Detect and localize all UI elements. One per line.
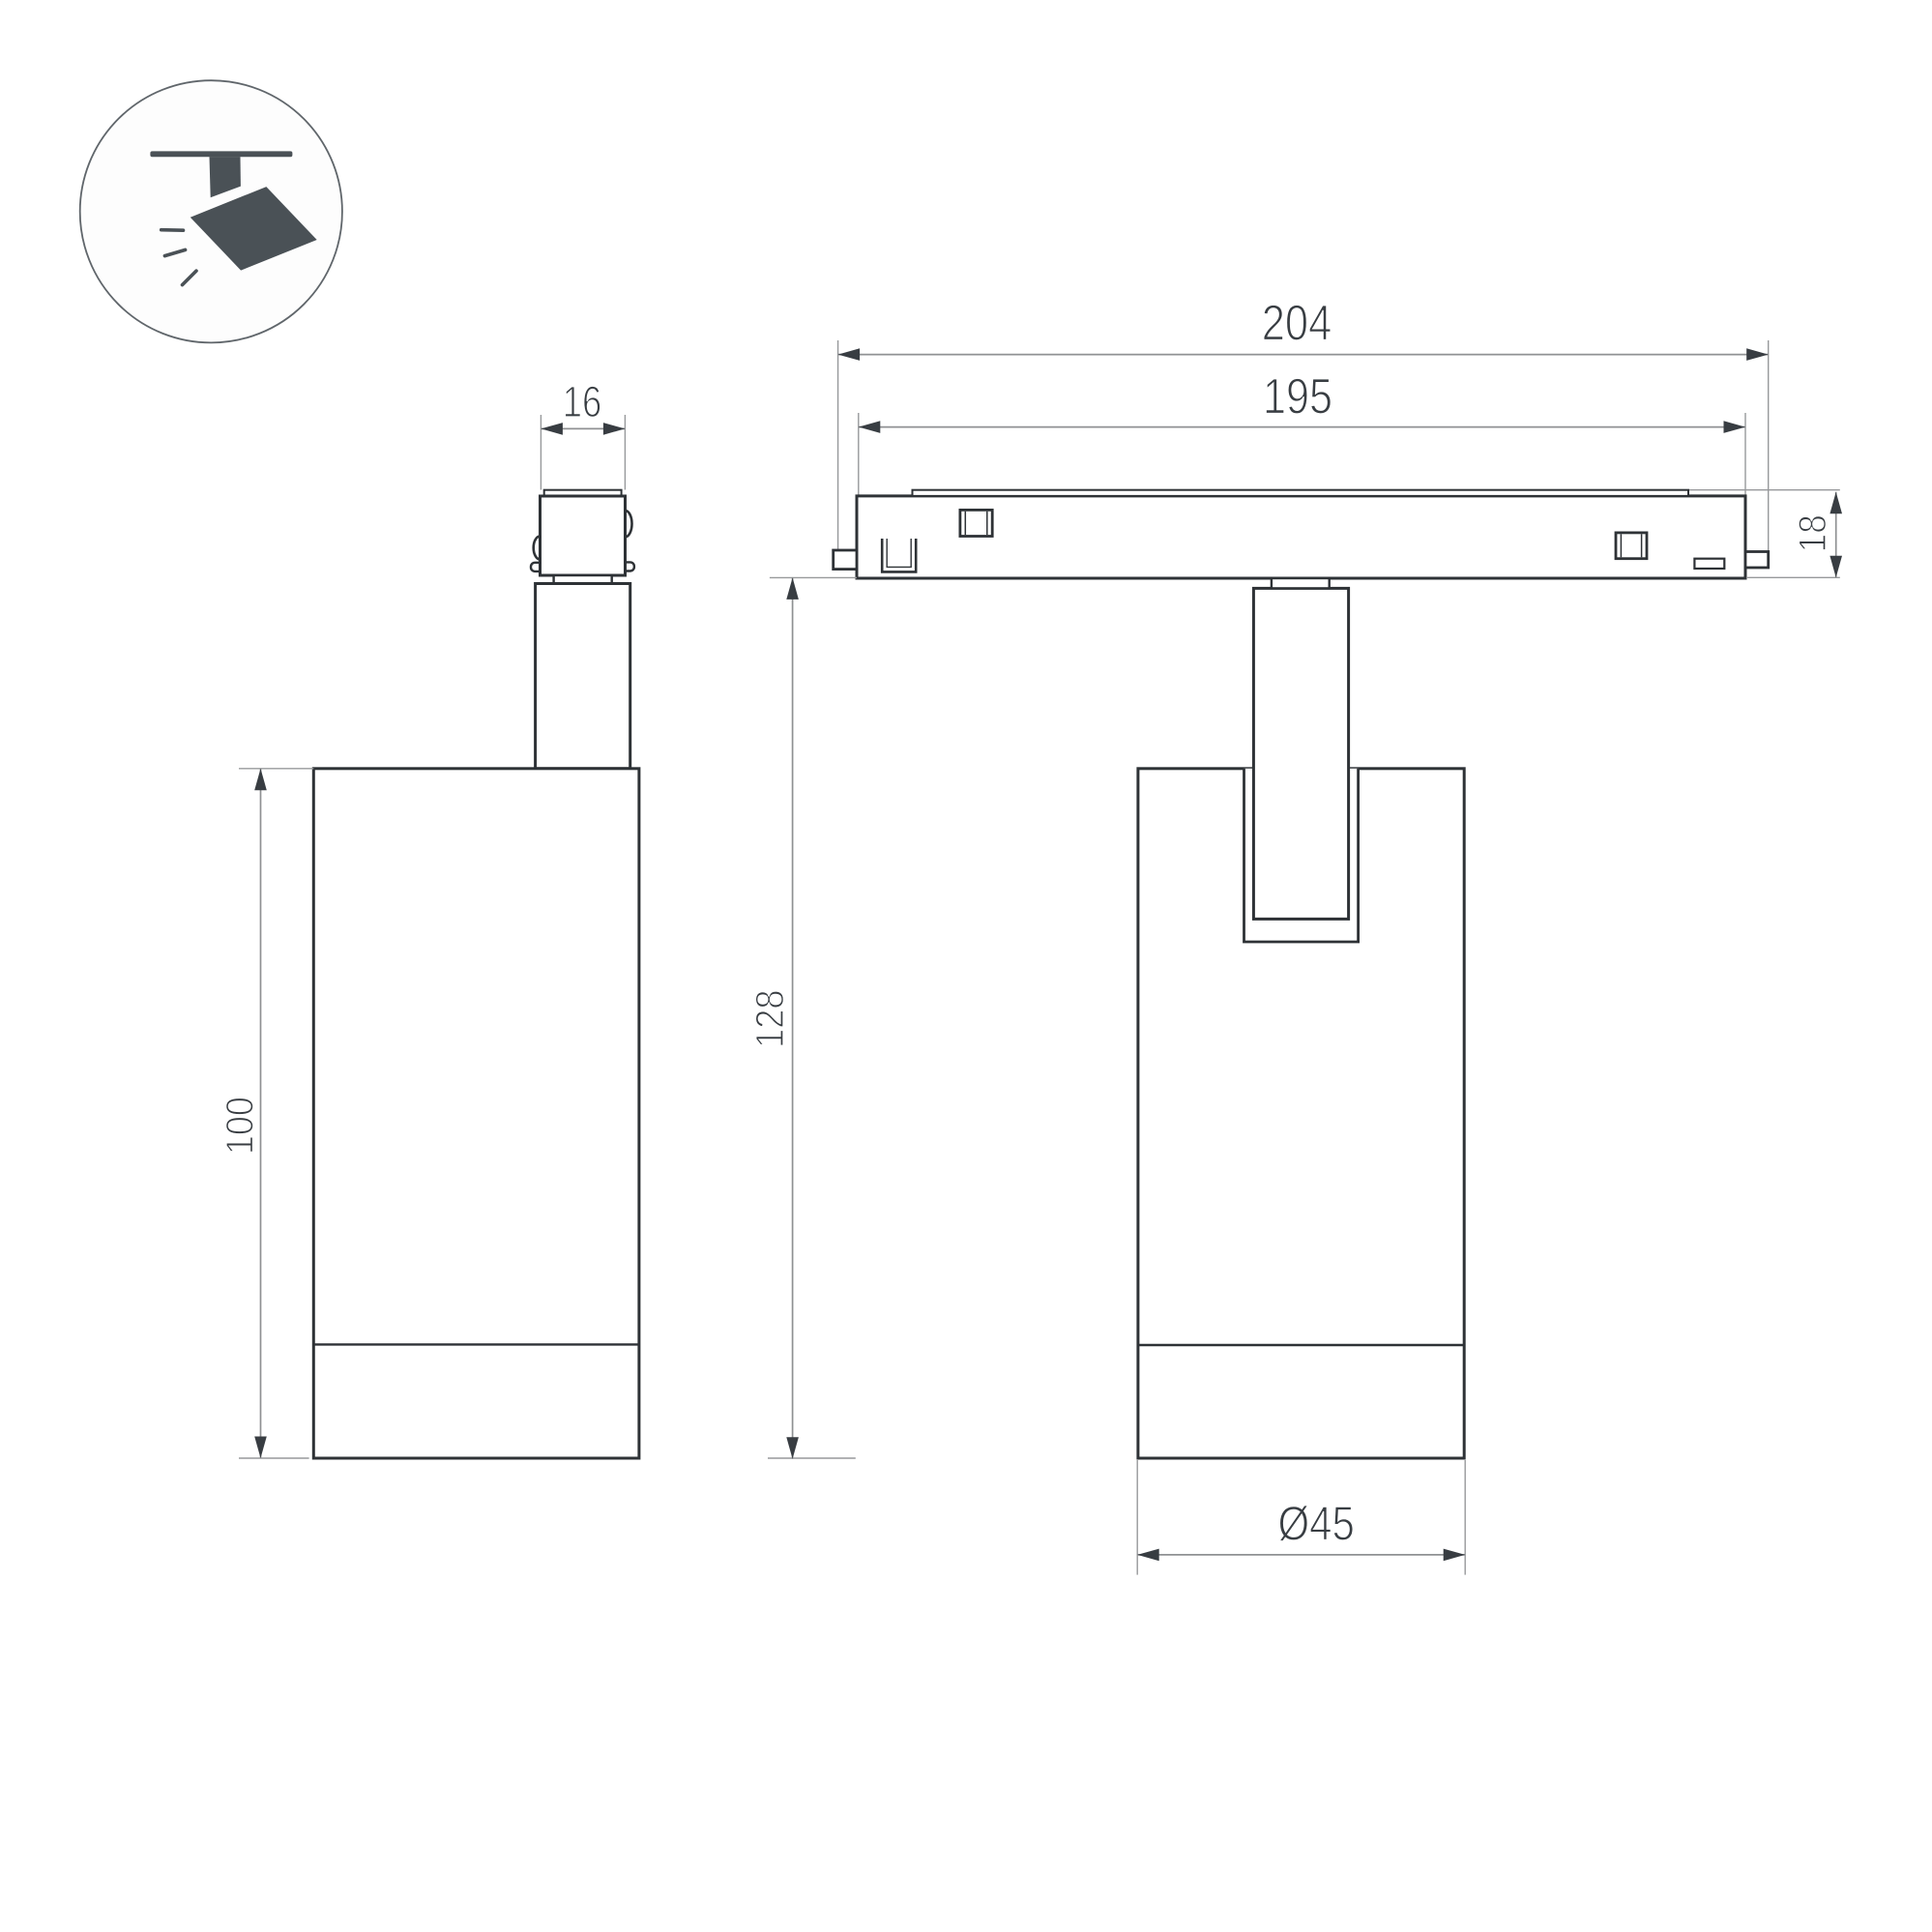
- svg-text:Ø45: Ø45: [1278, 1496, 1355, 1550]
- svg-text:204: 204: [1262, 295, 1332, 351]
- svg-text:195: 195: [1263, 368, 1332, 424]
- svg-text:16: 16: [563, 377, 602, 426]
- svg-text:18: 18: [1792, 514, 1834, 552]
- svg-text:100: 100: [220, 1097, 262, 1155]
- svg-text:128: 128: [747, 989, 792, 1048]
